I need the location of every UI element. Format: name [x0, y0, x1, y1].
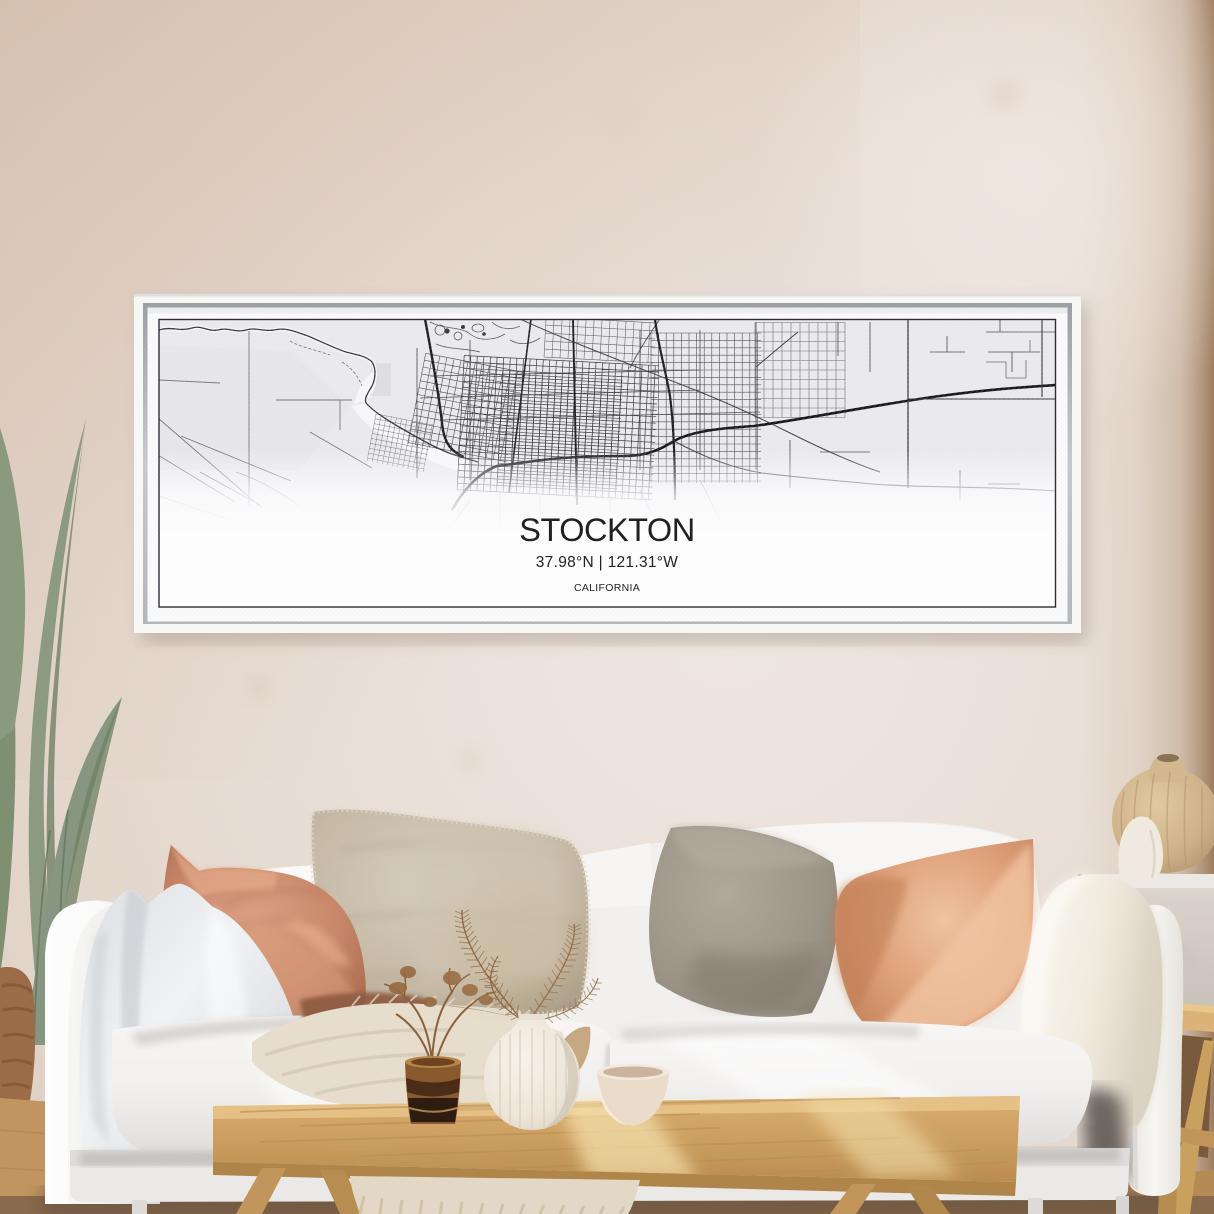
svg-text:CALIFORNIA: CALIFORNIA — [574, 582, 640, 594]
svg-text:STOCKTON: STOCKTON — [519, 512, 694, 548]
svg-text:37.98°N | 121.31°W: 37.98°N | 121.31°W — [536, 554, 679, 571]
